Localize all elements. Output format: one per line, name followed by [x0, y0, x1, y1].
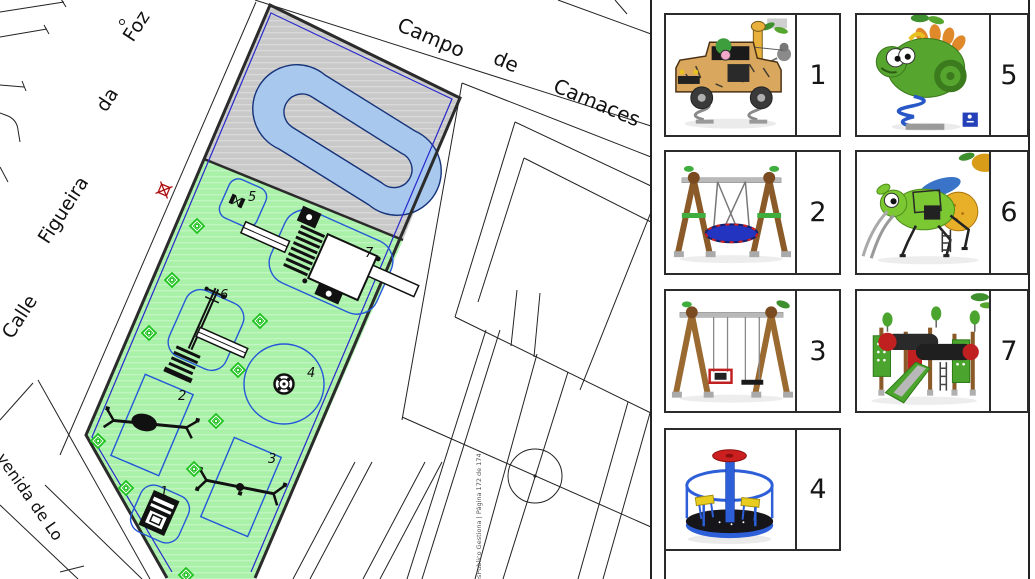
equipment-cell-2: 2 — [664, 150, 841, 275]
panel-separator-line — [650, 0, 652, 579]
roundabout-icon — [508, 449, 562, 503]
equipment-number-1: 1 — [797, 15, 839, 135]
equipment-number-4: 4 — [797, 430, 839, 549]
red-marker-icon — [155, 181, 172, 198]
zone-7-number: 7 — [365, 246, 374, 261]
grasshopper-climber-image — [857, 152, 991, 273]
page: 1 2 3 4 5 6 7 Campo — [0, 0, 1035, 579]
watermark-text: esPublico Gestiona | Página 172 de 174 — [475, 453, 483, 579]
equipment-number-2: 2 — [797, 152, 839, 273]
next-row-border-stub — [664, 551, 666, 579]
chameleon-spring-rider-image — [857, 15, 991, 135]
zone-4-number: 4 — [307, 366, 315, 381]
street-label-figueira: Figueira — [34, 173, 93, 248]
merry-go-round-illustration — [666, 430, 795, 549]
street-label-foz: Foz — [119, 7, 155, 46]
equipment-cell-1: 1 — [664, 13, 841, 137]
chameleon-illustration — [857, 15, 989, 135]
zone-2-number: 2 — [178, 389, 186, 404]
zone-3-number: 3 — [268, 452, 276, 467]
grasshopper-illustration — [857, 152, 989, 273]
equipment-cell-3: 3 — [664, 289, 841, 413]
nest-swing-image — [666, 152, 797, 273]
street-label-calle: Calle — [0, 291, 42, 343]
merry-go-round-plan-icon — [275, 375, 294, 394]
play-structure-image — [857, 291, 991, 411]
equipment-number-7: 7 — [991, 291, 1027, 411]
merry-go-round-image — [666, 430, 797, 549]
zone-6-number: 6 — [220, 288, 228, 303]
equipment-cell-4: 4 — [664, 428, 841, 551]
equipment-number-3: 3 — [797, 291, 839, 411]
street-label-campo: Campo — [394, 13, 468, 63]
street-label-de: de — [490, 46, 522, 78]
site-plan-map: 1 2 3 4 5 6 7 Campo — [0, 0, 652, 579]
safari-jeep-illustration — [666, 15, 795, 135]
equipment-cell-6: 6 — [855, 150, 1029, 275]
degree-symbol — [120, 20, 125, 25]
safari-jeep-spring-rider-image — [666, 15, 797, 135]
nest-swing-illustration — [666, 152, 795, 273]
street-label-da: da — [92, 84, 123, 116]
double-swing-illustration — [666, 291, 795, 411]
equipment-number-5: 5 — [991, 15, 1027, 135]
zone-1-number: 1 — [160, 485, 168, 500]
double-swing-image — [666, 291, 797, 411]
equipment-cell-5: 5 — [855, 13, 1029, 137]
zone-5-number: 5 — [248, 190, 256, 205]
equipment-number-6: 6 — [991, 152, 1027, 273]
play-structure-illustration — [857, 291, 989, 411]
equipment-cell-7: 7 — [855, 289, 1029, 413]
